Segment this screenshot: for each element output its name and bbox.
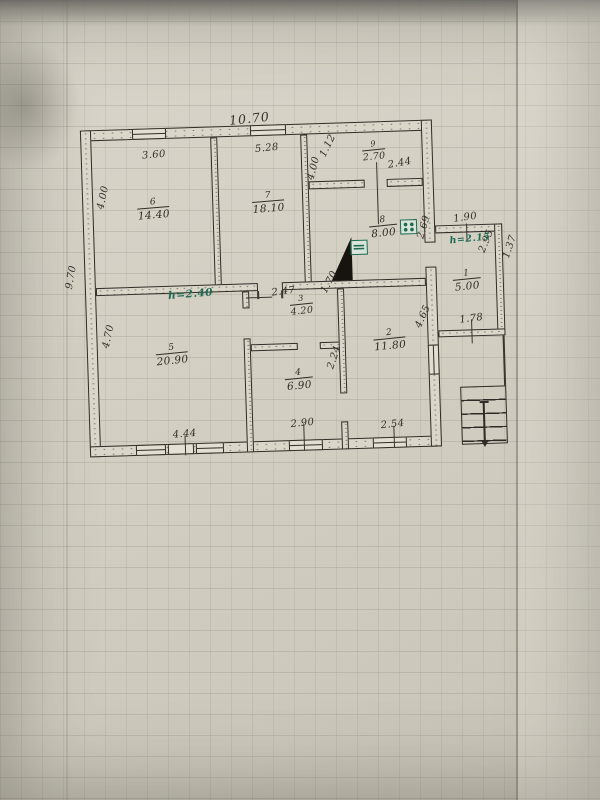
- window-icon: [250, 124, 286, 136]
- wall-room4-room2-upper: [337, 288, 347, 393]
- room-2-label: 2 11.80: [372, 326, 406, 353]
- dim-room6-top: 3.60: [142, 149, 167, 162]
- floor-plan: 10.70 9.70 3.60 4.00 5.28 4.00 1.12 2.44…: [0, 0, 600, 800]
- room-5-label: 5 20.90: [155, 341, 189, 368]
- room-2-area: 11.80: [374, 337, 407, 353]
- wall-room6-room7: [210, 137, 222, 286]
- wall-room9-room8-right: [387, 178, 423, 187]
- dim-annex-bottom: 1.78: [459, 312, 484, 326]
- heater-icon: [350, 240, 367, 256]
- dim-annex-right: 1.37: [501, 234, 519, 260]
- window-icon: [136, 444, 166, 456]
- room-8-area: 8.00: [369, 225, 398, 241]
- photo-of-floor-plan: 10.70 9.70 3.60 4.00 5.28 4.00 1.12 2.44…: [0, 0, 600, 800]
- room-3-label: 3 4.20: [289, 293, 314, 319]
- wall-room5-lower: [244, 338, 255, 452]
- porch-right-line: [503, 335, 507, 385]
- room-7-label: 7 18.10: [251, 189, 285, 216]
- wall-room3-room4-left: [251, 343, 298, 351]
- room-1-label: 1 5.00: [452, 267, 482, 294]
- dim-room9-width: 2.44: [387, 156, 412, 171]
- dim-room4-bottom: 2.90: [290, 417, 315, 430]
- room-1-area: 5.00: [453, 278, 482, 294]
- wall-room5-upper: [242, 291, 250, 308]
- dim-left-total: 9.70: [64, 265, 79, 290]
- room-9-label: 9 2.70: [361, 138, 386, 164]
- doorway-bottom: [168, 443, 194, 455]
- dim-room9-entry: 1.12: [318, 133, 338, 159]
- note-main-height: h=2.40: [168, 286, 214, 302]
- room-6-area: 14.40: [137, 207, 170, 223]
- dim-room5-left: 4.70: [101, 324, 117, 350]
- window-icon: [428, 344, 440, 374]
- room-6-label: 6 14.40: [136, 196, 170, 223]
- room-3-area: 4.20: [290, 304, 314, 319]
- dim-room6-left: 4.00: [95, 185, 111, 211]
- wall-room4-room2-lower: [341, 421, 349, 449]
- room-4-area: 6.90: [285, 377, 314, 393]
- room-5-area: 20.90: [156, 352, 189, 368]
- room-9-area: 2.70: [362, 149, 386, 164]
- dim-room7-right: 4.00: [306, 155, 323, 181]
- room-8-label: 8 8.00: [368, 214, 398, 241]
- dim-room5-bottom: 4.44: [172, 428, 197, 441]
- window-icon: [289, 439, 323, 451]
- wall-middle-right: [282, 278, 426, 291]
- wall-room9-room8-left: [309, 180, 365, 190]
- room-7-area: 18.10: [252, 200, 285, 216]
- room-4-label: 4 6.90: [284, 366, 314, 393]
- dim-room2-bottom: 2.54: [380, 418, 405, 431]
- wall-annex-right: [494, 223, 506, 335]
- window-icon: [373, 436, 407, 448]
- dim-room7-top: 5.28: [254, 142, 279, 155]
- stove-burners-icon: [400, 219, 417, 235]
- dim-annex-top: 1.90: [453, 211, 478, 225]
- window-icon: [132, 128, 166, 140]
- window-icon: [196, 442, 224, 454]
